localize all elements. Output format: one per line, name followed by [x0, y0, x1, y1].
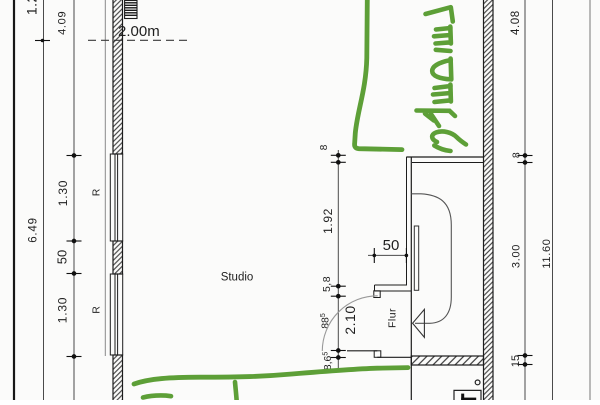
svg-text:50: 50	[383, 237, 400, 254]
svg-text:8: 8	[319, 144, 330, 150]
svg-text:1.30: 1.30	[56, 297, 70, 324]
svg-text:Flur: Flur	[386, 308, 398, 328]
svg-text:R: R	[91, 188, 103, 196]
svg-text:2.00m: 2.00m	[118, 23, 160, 40]
svg-text:50: 50	[55, 250, 70, 264]
svg-text:1.30: 1.30	[56, 180, 70, 207]
svg-text:11.60: 11.60	[541, 238, 553, 268]
svg-text:8: 8	[511, 152, 523, 158]
svg-text:1.25: 1.25	[24, 0, 40, 15]
svg-text:1.92: 1.92	[321, 208, 335, 234]
svg-text:Studio: Studio	[221, 272, 254, 284]
svg-text:2.10: 2.10	[342, 305, 358, 334]
svg-text:15: 15	[510, 355, 522, 367]
svg-text:R: R	[91, 306, 103, 314]
svg-text:3.00: 3.00	[511, 244, 523, 268]
svg-text:6.49: 6.49	[28, 217, 40, 243]
svg-text:5,8: 5,8	[321, 276, 333, 292]
svg-text:4.09: 4.09	[56, 11, 68, 35]
svg-text:4.08: 4.08	[510, 10, 522, 35]
